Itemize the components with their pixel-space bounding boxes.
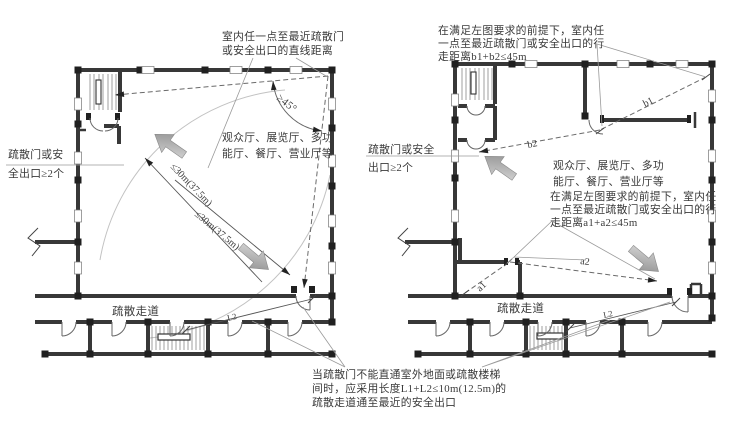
evacuation-diagram: 室内任一点至最近疏散门 或安全出口的直线距离 疏散门或安 全出口≥2个 观众厅、… <box>0 0 735 422</box>
right-mid-note-line3: 走距离a1+a2≤45m <box>550 215 638 229</box>
a1-label: a1 <box>474 280 488 294</box>
left-top-note-line1: 室内任一点至最近疏散门 <box>222 29 344 43</box>
right-mid-note-line1: 在满足左图要求的前提下，室内任 <box>550 189 716 203</box>
stair-icon <box>90 74 116 110</box>
right-top-note-line1: 在满足左图要求的前提下，室内任 <box>438 23 604 37</box>
right-room-label-line2: 能厅、餐厅、营业厅等 <box>553 174 664 188</box>
distance-label-lower: ≤30m(37.5m) <box>192 209 241 253</box>
distance-label-upper: ≤30m(37.5m) <box>168 161 214 208</box>
b2-label: b2 <box>526 138 538 151</box>
right-mid-note-line2: 一点至最近疏散门或安全出口的行 <box>550 202 716 216</box>
right-top-note-line2: 一点至最近疏散门或安全出口的行 <box>438 36 604 50</box>
left-room-label-line1: 观众厅、展览厅、多功 <box>222 130 333 144</box>
exit-direction-arrow <box>624 240 666 280</box>
figure-canvas: 室内任一点至最近疏散门 或安全出口的直线距离 疏散门或安 全出口≥2个 观众厅、… <box>0 0 735 422</box>
stair-icon <box>530 326 563 350</box>
stair-icon <box>462 68 492 100</box>
bottom-note-line3: 疏散走道通至最近的安全出口 <box>312 395 456 409</box>
left-floor-plan: 室内任一点至最近疏散门 或安全出口的直线距离 疏散门或安 全出口≥2个 观众厅、… <box>6 29 344 358</box>
exit-direction-arrow <box>149 125 191 164</box>
right-room-label-line1: 观众厅、展览厅、多功 <box>553 158 664 172</box>
left-l2-label: L2 <box>226 311 238 323</box>
b1-label: b1 <box>641 95 655 109</box>
left-exit-note-line2: 全出口≥2个 <box>8 166 64 180</box>
angle-label: ≥45° <box>274 92 299 115</box>
left-room-label-line2: 能厅、餐厅、营业厅等 <box>222 146 333 160</box>
right-exit-note-line1: 疏散门或安全 <box>368 142 435 156</box>
left-top-note-line2: 或安全出口的直线距离 <box>222 43 333 57</box>
bottom-note-line1: 当疏散门不能直通室外地面或疏散楼梯 <box>312 367 501 381</box>
a2-label: a2 <box>580 256 591 268</box>
right-floor-plan: 在满足左图要求的前提下，室内任 一点至最近疏散门或安全出口的行 走距离b1+b2… <box>366 23 716 358</box>
window-marks <box>75 67 336 275</box>
bottom-note-line2: 间时，应采用长度L1+L2≤10m(12.5m)的 <box>312 381 506 395</box>
right-exit-note-line2: 出口≥2个 <box>368 160 413 174</box>
stair-icon <box>152 326 204 350</box>
left-corridor-label: 疏散走道 <box>112 304 159 318</box>
exit-direction-arrow <box>479 147 521 186</box>
right-top-note-line3: 走距离b1+b2≤45m <box>438 49 527 63</box>
right-corridor-label: 疏散走道 <box>497 301 544 315</box>
right-l2-label: L2 <box>602 308 613 320</box>
left-exit-note-line1: 疏散门或安 <box>8 147 63 161</box>
